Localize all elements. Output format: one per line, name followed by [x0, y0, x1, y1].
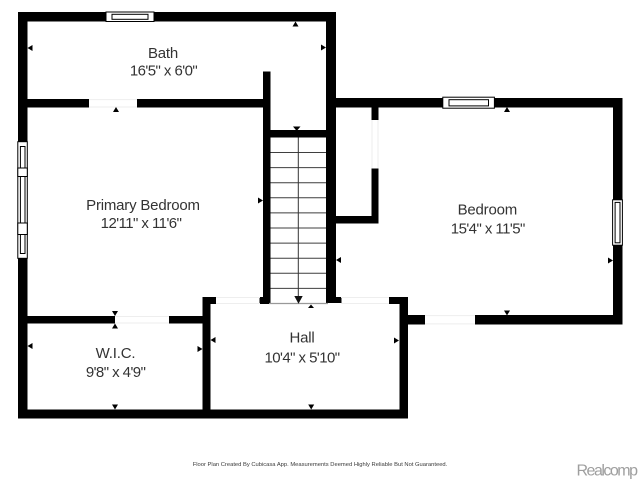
svg-text:Bedroom: Bedroom [458, 202, 517, 219]
svg-text:16'5" x 6'0": 16'5" x 6'0" [130, 63, 198, 80]
svg-text:Primary Bedroom: Primary Bedroom [86, 197, 200, 214]
svg-text:9'8" x 4'9": 9'8" x 4'9" [86, 364, 146, 381]
svg-text:Bath: Bath [148, 45, 178, 62]
svg-text:10'4" x 5'10": 10'4" x 5'10" [264, 350, 339, 367]
svg-text:Hall: Hall [289, 330, 314, 347]
svg-text:15'4" x 11'5": 15'4" x 11'5" [451, 221, 525, 238]
svg-text:Floor Plan Created By Cubicasa: Floor Plan Created By Cubicasa App. Meas… [193, 462, 448, 468]
svg-text:W.I.C.: W.I.C. [96, 345, 136, 362]
svg-text:12'11" x 11'6": 12'11" x 11'6" [101, 215, 182, 232]
svg-text:Realcomp: Realcomp [576, 463, 638, 480]
